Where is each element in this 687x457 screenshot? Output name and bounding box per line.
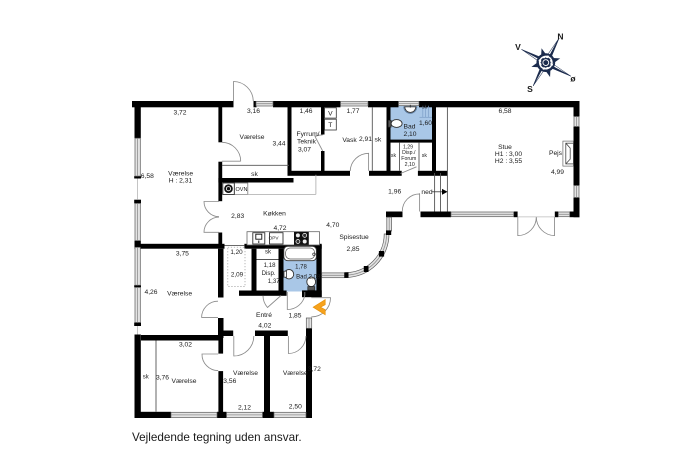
svg-text:2,91: 2,91 <box>359 136 372 143</box>
svg-text:3,16: 3,16 <box>247 108 260 115</box>
svg-text:N: N <box>557 32 563 42</box>
svg-text:4,02: 4,02 <box>258 322 271 329</box>
svg-text:6,58: 6,58 <box>498 108 511 115</box>
svg-text:3,72: 3,72 <box>173 110 186 117</box>
svg-text:6,58: 6,58 <box>141 173 154 180</box>
svg-text:4,72: 4,72 <box>273 225 286 232</box>
svg-text:1,96: 1,96 <box>388 188 401 195</box>
svg-text:V: V <box>515 42 521 52</box>
svg-text:Teknik: Teknik <box>297 138 317 145</box>
svg-text:4,26: 4,26 <box>144 289 157 296</box>
svg-text:Værelse: Værelse <box>283 370 308 377</box>
svg-text:Vask: Vask <box>342 137 357 144</box>
svg-text:3,07: 3,07 <box>298 146 311 153</box>
svg-text:3,56: 3,56 <box>223 378 236 385</box>
svg-text:Disp.: Disp. <box>262 270 276 277</box>
svg-text:2,50: 2,50 <box>289 403 302 410</box>
svg-text:sk: sk <box>375 136 382 143</box>
svg-text:2,83: 2,83 <box>231 213 244 220</box>
svg-text:OPV: OPV <box>269 235 280 240</box>
svg-text:1,60: 1,60 <box>419 120 432 127</box>
svg-text:Vejledende tegning uden ansvar: Vejledende tegning uden ansvar. <box>132 431 302 444</box>
svg-text:Værelse: Værelse <box>168 170 193 177</box>
svg-text:2,10: 2,10 <box>405 162 415 168</box>
svg-text:Bad: Bad <box>296 275 307 281</box>
svg-text:sk: sk <box>422 105 428 111</box>
svg-text:Værelse: Værelse <box>240 134 265 141</box>
svg-text:1,78: 1,78 <box>295 264 307 270</box>
svg-text:Pejs: Pejs <box>549 150 563 157</box>
svg-text:H2 : 3,55: H2 : 3,55 <box>495 158 522 165</box>
svg-text:Bad: Bad <box>404 123 416 130</box>
svg-text:Spisestue: Spisestue <box>339 234 369 241</box>
svg-text:Værelse: Værelse <box>167 291 192 298</box>
svg-text:S: S <box>527 84 533 94</box>
svg-text:Køkken: Køkken <box>263 210 286 217</box>
svg-text:sk: sk <box>143 374 150 380</box>
svg-text:2,09: 2,09 <box>231 271 244 278</box>
svg-text:4,70: 4,70 <box>326 222 339 229</box>
svg-text:Værelse: Værelse <box>172 378 197 385</box>
svg-text:OVN: OVN <box>236 187 248 193</box>
svg-text:2,12: 2,12 <box>238 404 251 411</box>
svg-text:V: V <box>328 111 333 118</box>
svg-text:ned: ned <box>421 189 432 196</box>
svg-text:1,77: 1,77 <box>346 108 359 115</box>
svg-text:sk: sk <box>265 249 272 256</box>
svg-text:1,85: 1,85 <box>288 312 301 319</box>
svg-text:Værelse: Værelse <box>233 370 258 377</box>
svg-text:1,46: 1,46 <box>299 108 312 115</box>
svg-text:Stue: Stue <box>498 144 512 151</box>
svg-text:2,08: 2,08 <box>309 275 321 281</box>
svg-text:2,10: 2,10 <box>403 131 416 138</box>
svg-text:1,18: 1,18 <box>264 262 276 269</box>
svg-text:sk: sk <box>422 153 428 159</box>
svg-text:Entré: Entré <box>256 312 272 319</box>
svg-text:1,37: 1,37 <box>268 278 280 285</box>
svg-text:ø: ø <box>570 74 576 84</box>
svg-text:3,76: 3,76 <box>156 374 169 381</box>
svg-text:3,02: 3,02 <box>179 341 192 348</box>
svg-text:sk: sk <box>251 171 258 178</box>
svg-text:T: T <box>328 122 332 129</box>
svg-text:H : 2,31: H : 2,31 <box>169 177 193 184</box>
svg-text:1,20: 1,20 <box>230 249 243 256</box>
svg-text:3,44: 3,44 <box>272 140 285 147</box>
svg-text:sk: sk <box>391 153 397 159</box>
svg-text:H1 : 3,00: H1 : 3,00 <box>495 151 522 158</box>
svg-text:2,85: 2,85 <box>346 246 359 253</box>
svg-text:4,99: 4,99 <box>551 169 564 176</box>
svg-text:3,75: 3,75 <box>176 250 189 257</box>
svg-text:3,72: 3,72 <box>308 366 321 373</box>
svg-text:Fyrrum/: Fyrrum/ <box>296 131 319 138</box>
